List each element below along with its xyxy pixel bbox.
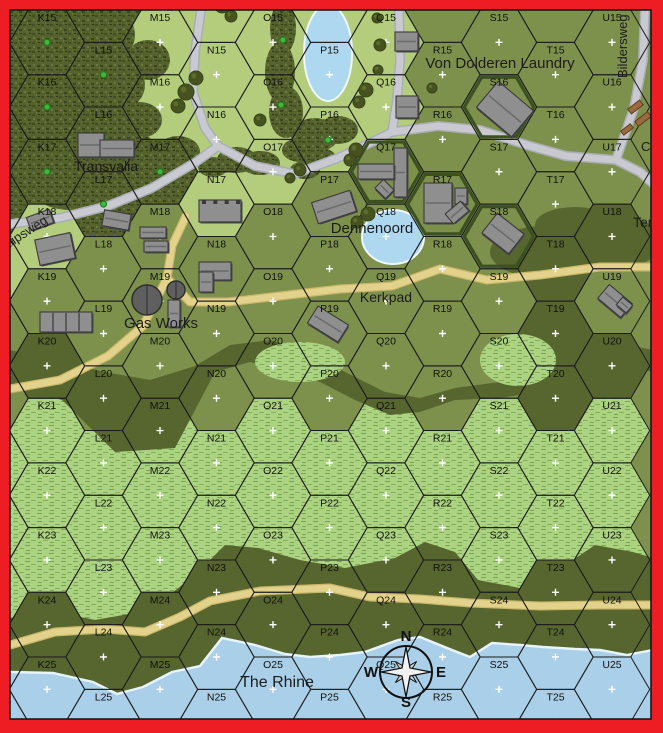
woods-dot bbox=[157, 169, 163, 175]
woods-dot bbox=[101, 72, 107, 78]
hex-label-Q21: Q21 bbox=[376, 400, 396, 412]
building-m18-a bbox=[140, 227, 168, 240]
hex-label-T25: T25 bbox=[546, 691, 564, 703]
hex-label-O16: O16 bbox=[263, 77, 283, 89]
tree bbox=[225, 10, 237, 22]
hex-label-S21: S21 bbox=[490, 400, 509, 412]
building-transvalia-b bbox=[100, 140, 136, 159]
compass-E: E bbox=[436, 664, 446, 681]
tree bbox=[285, 173, 295, 183]
hex-label-P18: P18 bbox=[320, 238, 339, 250]
tree bbox=[171, 99, 185, 113]
hex-label-U23: U23 bbox=[602, 530, 621, 542]
hex-label-S24: S24 bbox=[490, 594, 509, 606]
tree bbox=[294, 164, 306, 176]
hex-label-S22: S22 bbox=[490, 465, 509, 477]
hex-label-S25: S25 bbox=[490, 659, 509, 671]
hex-label-N24: N24 bbox=[207, 627, 226, 639]
hex-label-M17: M17 bbox=[150, 141, 171, 153]
hex-label-U21: U21 bbox=[602, 400, 621, 412]
hex-label-N23: N23 bbox=[207, 562, 226, 574]
hex-label-N19: N19 bbox=[207, 303, 226, 315]
hex-label-U25: U25 bbox=[602, 659, 621, 671]
building-n19-b bbox=[199, 272, 215, 294]
hex-label-P25: P25 bbox=[320, 691, 339, 703]
hex-label-S17: S17 bbox=[490, 141, 509, 153]
hex-wargame-map[interactable]: K15L15M15N15O15P15Q15R15S15T15U15K16L16M… bbox=[0, 0, 663, 733]
place-label: Von Dolderen Laundry bbox=[425, 55, 575, 72]
hex-label-K19: K19 bbox=[38, 271, 57, 283]
hex-label-M18: M18 bbox=[150, 206, 171, 218]
hex-label-M24: M24 bbox=[150, 594, 171, 606]
hex-label-R23: R23 bbox=[433, 562, 452, 574]
hex-label-M19: M19 bbox=[150, 271, 171, 283]
hex-label-U22: U22 bbox=[602, 465, 621, 477]
hex-label-K20: K20 bbox=[38, 336, 57, 348]
tree bbox=[344, 154, 356, 166]
hex-label-P19: P19 bbox=[320, 303, 339, 315]
place-label: Transvalia bbox=[74, 158, 138, 174]
place-label: The Rhine bbox=[240, 674, 314, 691]
hex-label-P17: P17 bbox=[320, 174, 339, 186]
hex-label-N22: N22 bbox=[207, 497, 226, 509]
hex-label-T23: T23 bbox=[546, 562, 564, 574]
hex-label-K23: K23 bbox=[38, 530, 57, 542]
hex-label-N25: N25 bbox=[207, 691, 226, 703]
hex-label-P22: P22 bbox=[320, 497, 339, 509]
hex-label-P20: P20 bbox=[320, 368, 339, 380]
hex-label-P23: P23 bbox=[320, 562, 339, 574]
hex-label-K25: K25 bbox=[38, 659, 57, 671]
compass-N: N bbox=[401, 628, 412, 645]
hex-label-R21: R21 bbox=[433, 433, 452, 445]
map-content: K15L15M15N15O15P15Q15R15S15T15U15K16L16M… bbox=[0, 0, 660, 733]
hex-label-S20: S20 bbox=[490, 336, 509, 348]
hex-label-S18: S18 bbox=[490, 206, 509, 218]
hex-label-N17: N17 bbox=[207, 174, 226, 186]
building-n18-castle bbox=[199, 200, 243, 224]
hex-label-T24: T24 bbox=[546, 627, 564, 639]
hex-label-O21: O21 bbox=[263, 400, 283, 412]
hex-label-T20: T20 bbox=[546, 368, 564, 380]
hex-label-R17: R17 bbox=[433, 174, 452, 186]
hex-label-O22: O22 bbox=[263, 465, 283, 477]
building-q16-house bbox=[396, 96, 420, 120]
hex-label-R18: R18 bbox=[433, 238, 452, 250]
hex-label-N15: N15 bbox=[207, 44, 226, 56]
hex-label-M15: M15 bbox=[150, 12, 171, 24]
hex-label-S19: S19 bbox=[490, 271, 509, 283]
compass-W: W bbox=[364, 664, 379, 681]
hex-label-L20: L20 bbox=[95, 368, 113, 380]
tree bbox=[374, 39, 386, 51]
woods-dot bbox=[44, 169, 50, 175]
tree bbox=[353, 96, 365, 108]
hex-label-Q22: Q22 bbox=[376, 465, 396, 477]
hex-label-M21: M21 bbox=[150, 400, 171, 412]
tree bbox=[373, 65, 383, 75]
hex-label-S23: S23 bbox=[490, 530, 509, 542]
place-label: Dennenoord bbox=[331, 220, 414, 237]
hex-label-K21: K21 bbox=[38, 400, 57, 412]
hex-label-L23: L23 bbox=[95, 562, 113, 574]
woods-dot bbox=[44, 104, 50, 110]
woods-dot bbox=[280, 37, 286, 43]
building-q15-house bbox=[395, 32, 420, 53]
hex-label-T17: T17 bbox=[546, 174, 564, 186]
hex-label-Q24: Q24 bbox=[376, 594, 396, 606]
hex-label-O24: O24 bbox=[263, 594, 283, 606]
hex-label-L24: L24 bbox=[95, 627, 113, 639]
hex-label-P21: P21 bbox=[320, 433, 339, 445]
hex-label-U20: U20 bbox=[602, 336, 621, 348]
hex-label-P24: P24 bbox=[320, 627, 339, 639]
tree bbox=[359, 83, 373, 97]
hex-label-N18: N18 bbox=[207, 238, 226, 250]
building-m18-b bbox=[144, 241, 170, 254]
hex-label-U18: U18 bbox=[602, 206, 621, 218]
hex-label-R19: R19 bbox=[433, 303, 452, 315]
compass-S: S bbox=[401, 694, 411, 711]
hex-label-T19: T19 bbox=[546, 303, 564, 315]
hex-label-Q17: Q17 bbox=[376, 141, 396, 153]
tree bbox=[178, 84, 194, 100]
hex-label-Q15: Q15 bbox=[376, 12, 396, 24]
place-label: C bbox=[641, 139, 650, 154]
place-label: Bildersweg bbox=[615, 14, 630, 78]
hex-label-L17: L17 bbox=[95, 174, 113, 186]
hex-label-M20: M20 bbox=[150, 336, 171, 348]
hex-label-K17: K17 bbox=[38, 141, 57, 153]
hex-label-O23: O23 bbox=[263, 530, 283, 542]
hex-label-O20: O20 bbox=[263, 336, 283, 348]
hex-label-U19: U19 bbox=[602, 271, 621, 283]
hex-label-L16: L16 bbox=[95, 109, 113, 121]
tree bbox=[254, 114, 266, 126]
hex-label-M25: M25 bbox=[150, 659, 171, 671]
hex-label-N20: N20 bbox=[207, 368, 226, 380]
hex-label-M16: M16 bbox=[150, 77, 171, 89]
hex-label-Q20: Q20 bbox=[376, 336, 396, 348]
hex-label-L22: L22 bbox=[95, 497, 113, 509]
hex-label-N21: N21 bbox=[207, 433, 226, 445]
hex-label-K24: K24 bbox=[38, 594, 57, 606]
hex-label-P16: P16 bbox=[320, 109, 339, 121]
hex-label-T21: T21 bbox=[546, 433, 564, 445]
hex-label-Q23: Q23 bbox=[376, 530, 396, 542]
place-label: Gas Works bbox=[124, 315, 198, 332]
woods-dot bbox=[44, 39, 50, 45]
hex-label-R22: R22 bbox=[433, 497, 452, 509]
building-l19-industrial bbox=[40, 312, 94, 334]
tree bbox=[361, 207, 375, 221]
hex-label-R25: R25 bbox=[433, 691, 452, 703]
hex-label-O25: O25 bbox=[263, 659, 283, 671]
hex-label-T18: T18 bbox=[546, 238, 564, 250]
hex-label-O19: O19 bbox=[263, 271, 283, 283]
hex-label-S16: S16 bbox=[490, 77, 509, 89]
woods-dot bbox=[278, 102, 284, 108]
hex-label-U17: U17 bbox=[602, 141, 621, 153]
hex-label-M23: M23 bbox=[150, 530, 171, 542]
woods-blob bbox=[118, 102, 162, 138]
hex-label-T16: T16 bbox=[546, 109, 564, 121]
place-label: Kerkpad bbox=[360, 289, 412, 305]
hex-label-R16: R16 bbox=[433, 109, 452, 121]
tree bbox=[189, 71, 203, 85]
hex-label-R20: R20 bbox=[433, 368, 452, 380]
tree bbox=[427, 83, 437, 93]
hex-label-P15: P15 bbox=[320, 44, 339, 56]
hex-label-L15: L15 bbox=[95, 44, 113, 56]
woods-dot bbox=[101, 201, 107, 207]
hex-label-Q19: Q19 bbox=[376, 271, 396, 283]
hex-label-O17: O17 bbox=[263, 141, 283, 153]
hex-label-K15: K15 bbox=[38, 12, 57, 24]
hex-label-L19: L19 bbox=[95, 303, 113, 315]
hex-label-U24: U24 bbox=[602, 594, 621, 606]
building-q17-main bbox=[394, 148, 409, 199]
hex-label-O15: O15 bbox=[263, 12, 283, 24]
hex-label-M22: M22 bbox=[150, 465, 171, 477]
hex-label-N16: N16 bbox=[207, 109, 226, 121]
building-q17-wing bbox=[358, 164, 396, 181]
hex-label-O18: O18 bbox=[263, 206, 283, 218]
place-label: Ter bbox=[633, 214, 653, 230]
map-frame: K15L15M15N15O15P15Q15R15S15T15U15K16L16M… bbox=[0, 0, 663, 733]
hex-label-S15: S15 bbox=[490, 12, 509, 24]
hex-label-Q18: Q18 bbox=[376, 206, 396, 218]
hex-label-Q16: Q16 bbox=[376, 77, 396, 89]
woods-dot bbox=[325, 137, 331, 143]
hex-label-L21: L21 bbox=[95, 433, 113, 445]
hex-label-R24: R24 bbox=[433, 627, 452, 639]
hex-label-K22: K22 bbox=[38, 465, 57, 477]
hex-label-K16: K16 bbox=[38, 77, 57, 89]
hex-label-L25: L25 bbox=[95, 691, 113, 703]
hex-label-T22: T22 bbox=[546, 497, 564, 509]
hex-label-L18: L18 bbox=[95, 238, 113, 250]
